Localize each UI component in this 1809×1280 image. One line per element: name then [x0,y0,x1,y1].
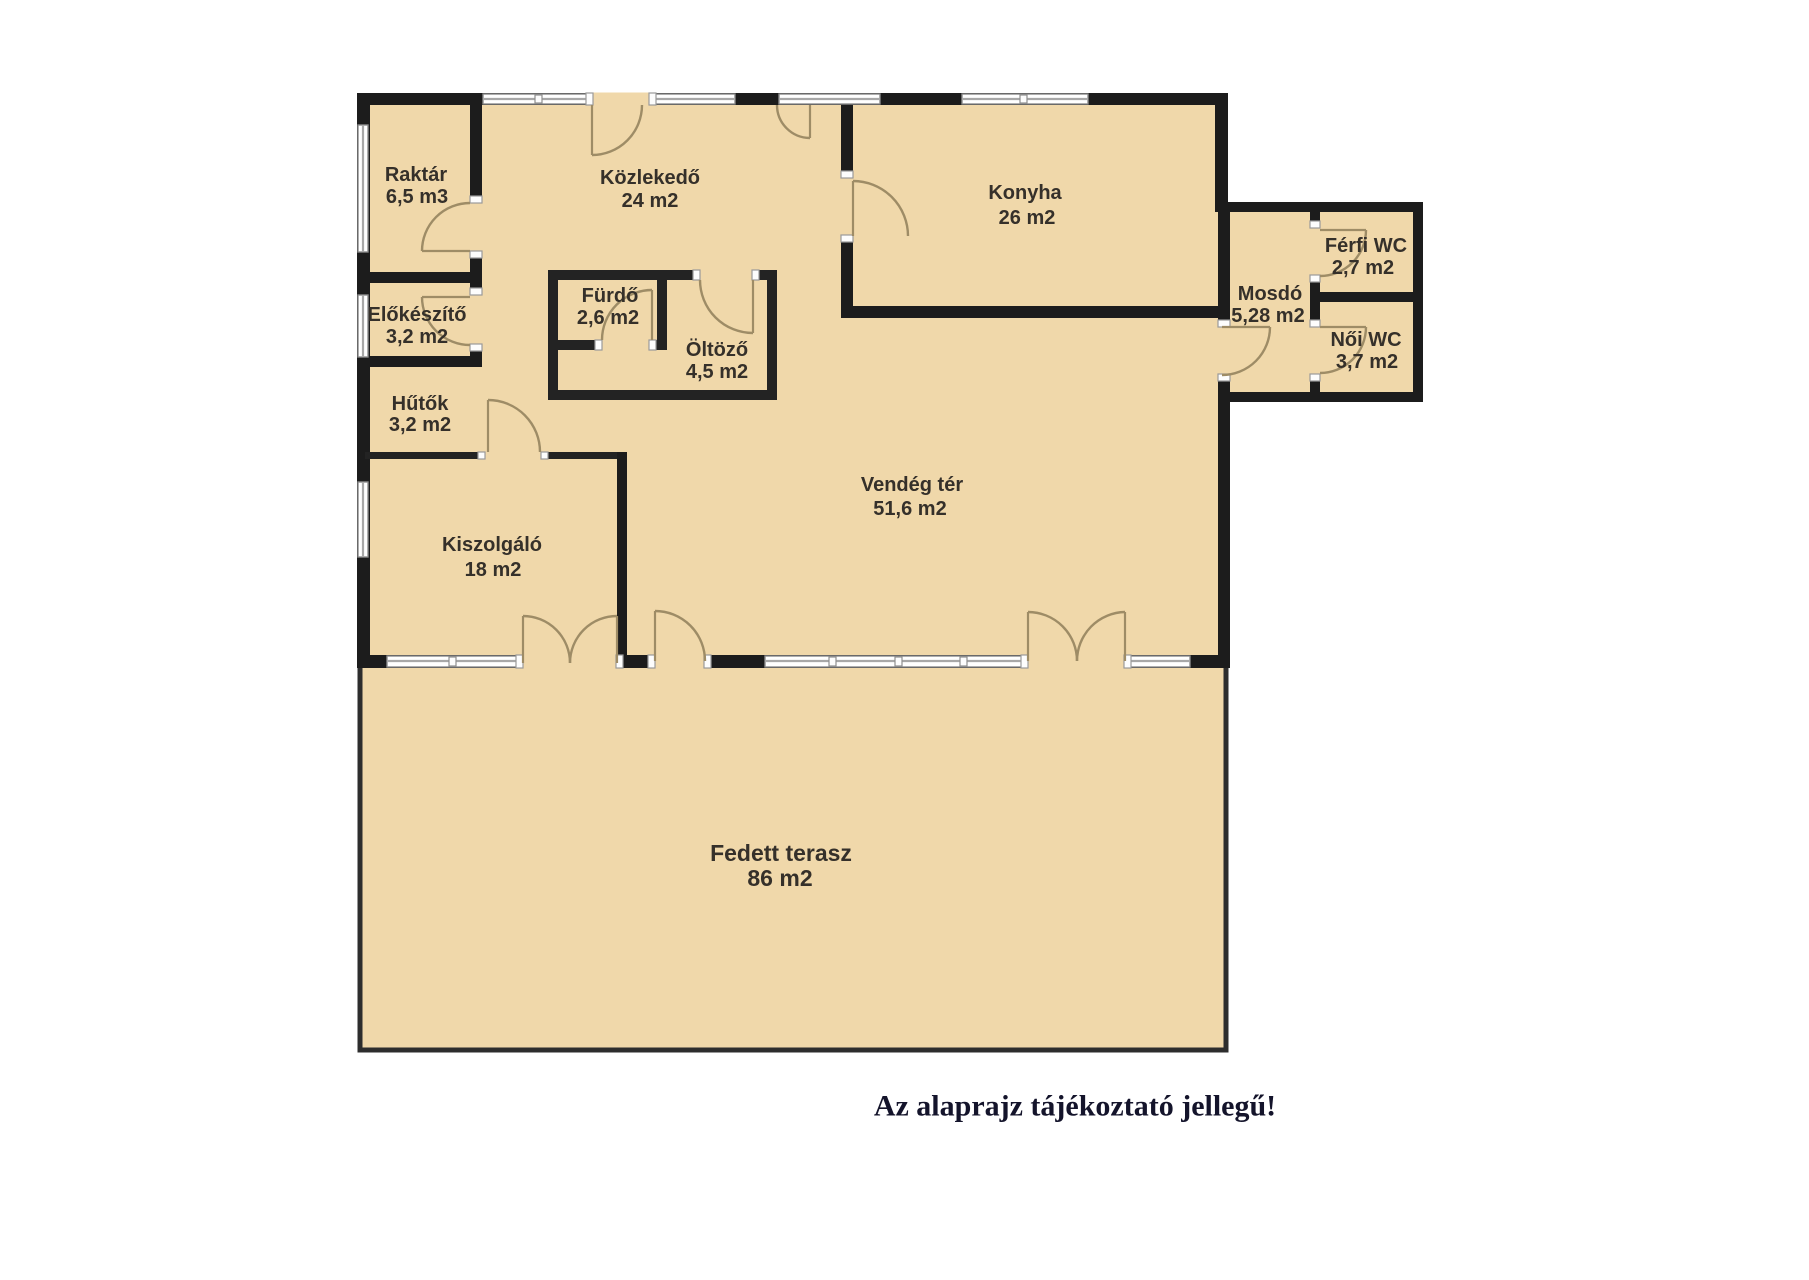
room-area-kozlekedo: 24 m2 [622,190,679,212]
window [1127,656,1190,667]
room-area-oltozo: 4,5 m2 [686,361,748,383]
room-name-kiszolgalo: Kiszolgáló [442,534,542,556]
door-opening [1310,221,1321,282]
room-area-kiszolgalo: 18 m2 [465,559,522,581]
window [387,656,520,667]
room-area-hutok: 3,2 m2 [389,414,451,436]
room-name-hutok: Hűtők [392,393,450,415]
room-area-mosdo: 5,28 m2 [1231,305,1304,327]
wall-wc-divider [1320,292,1413,302]
room-area-vendegter: 51,6 m2 [873,498,946,520]
room-name-konyha: Konyha [988,182,1062,204]
room-name-terasz: Fedett terasz [710,840,852,866]
wall-box-right [767,270,777,400]
room-area-furdo: 2,6 m2 [577,307,639,329]
window [779,94,880,104]
caption-text: Az alaprajz tájékoztató jellegű! [874,1090,1276,1123]
room-name-oltozo: Öltöző [686,338,748,361]
wall-right-lower [1218,212,1230,668]
room-name-ferfiwc: Férfi WC [1325,235,1407,257]
wall-annex-top [1215,202,1423,212]
window [358,295,368,357]
wall-annex-bottom [1222,392,1423,402]
window [962,94,1088,104]
window [650,94,735,104]
floor-plan-page: Raktár 6,5 m3 Közlekedő 24 m2 Konyha 26 … [0,0,1809,1280]
door-opening [595,340,656,351]
room-area-noiwc: 3,7 m2 [1336,351,1398,373]
room-name-noiwc: Női WC [1330,329,1401,351]
window [483,94,592,104]
room-name-kozlekedo: Közlekedő [600,167,700,189]
door-opening [470,196,483,258]
door-opening [1218,320,1231,381]
room-name-elokeszito: Előkészítő [368,304,467,326]
room-name-raktar: Raktár [385,164,447,186]
door-opening [1310,320,1321,381]
door-opening [693,270,759,281]
wall-box-left [548,270,558,400]
window [358,482,368,557]
wall-box-bottom [548,390,777,400]
window [765,656,1028,667]
room-area-terasz: 86 m2 [747,865,812,891]
wall-kiszolgalo-right [617,452,627,668]
wall-annex-right [1413,202,1423,402]
floor-plan-svg: Raktár 6,5 m3 Közlekedő 24 m2 Konyha 26 … [0,0,1809,1280]
door-opening [586,93,656,106]
wall-furdo-right [657,270,667,350]
door-opening [841,171,854,242]
room-name-mosdo: Mosdó [1238,283,1302,305]
door-opening [478,452,548,460]
room-area-raktar: 6,5 m3 [386,186,448,208]
room-name-vendegter: Vendég tér [861,474,963,496]
room-area-elokeszito: 3,2 m2 [386,326,448,348]
wall-konyha-bottom [841,306,1222,318]
wall-right-upper [1215,93,1228,212]
wall-raktar-bottom [357,272,482,283]
building-footprint [357,93,1423,668]
door-opening [648,655,711,669]
room-name-furdo: Fürdő [582,285,639,307]
wall-elokeszito-bottom [357,356,482,367]
door-opening [470,288,483,351]
window [358,125,368,252]
room-area-ferfiwc: 2,7 m2 [1332,257,1394,279]
room-area-konyha: 26 m2 [999,207,1056,229]
